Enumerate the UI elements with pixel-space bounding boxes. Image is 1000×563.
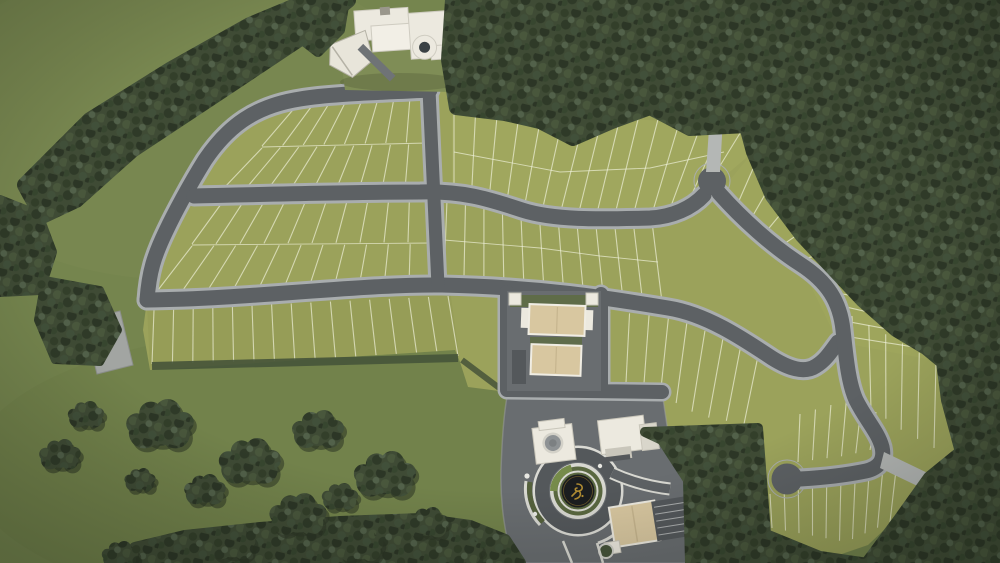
site-plan-render: Aerial 3D master plan render of a gated … — [0, 0, 1000, 563]
site-plan-svg: Aerial 3D master plan render of a gated … — [0, 0, 1000, 563]
vignette — [0, 0, 1000, 563]
